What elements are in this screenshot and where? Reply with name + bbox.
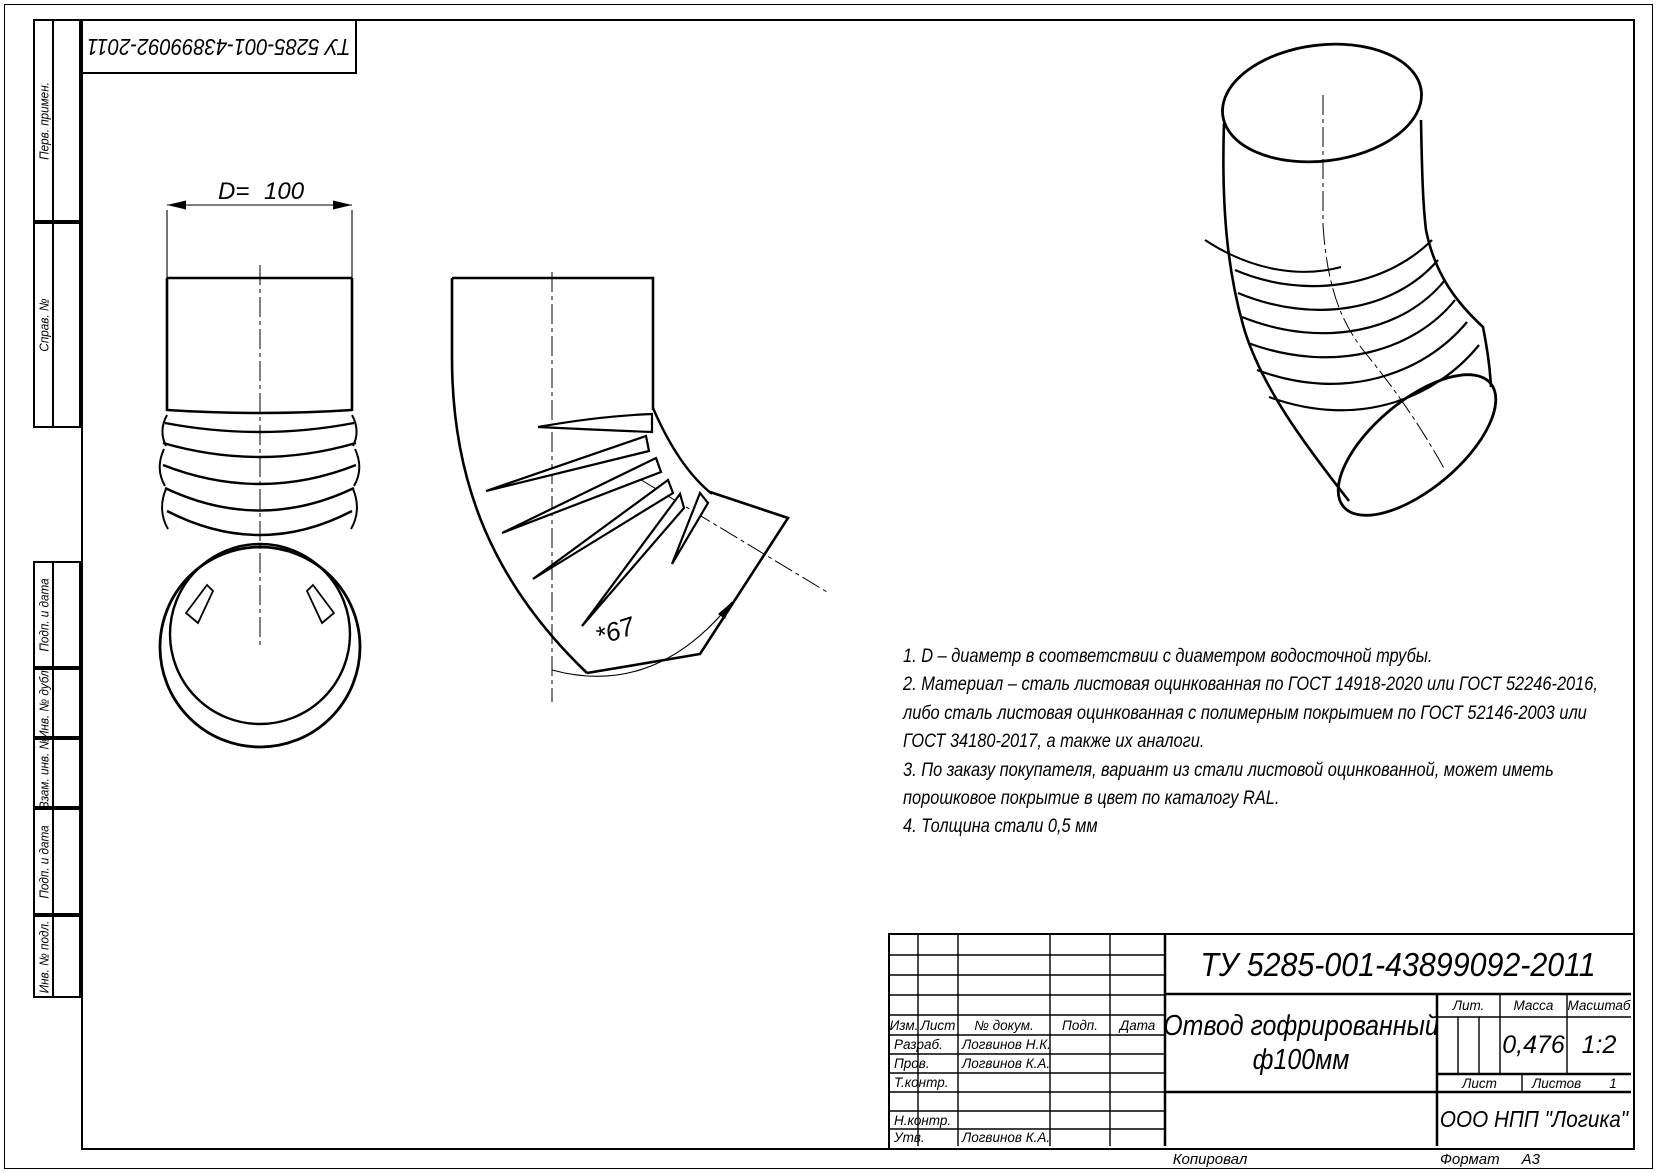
sidebar-cell-inv-dubl: Инв. № дубл.: [33, 668, 81, 738]
corrugation-blade: [502, 458, 661, 533]
inlet-opening-ellipse: [1216, 33, 1429, 173]
inner-bend-edge: [653, 408, 712, 494]
outlet-opening-ellipse: [1315, 350, 1519, 535]
tb-header-izm: Изм.: [890, 1015, 918, 1035]
tb-sheets-label: Листов: [1522, 1074, 1592, 1092]
tb-product-title-line2: ф100мм: [1253, 1043, 1350, 1077]
tu-number-stamp: ТУ 5285-001-43899092-2011: [81, 19, 357, 74]
note-line: 3. По заказу покупателя, вариант из стал…: [903, 756, 1525, 784]
tb-product-title-line1: Отвод гофрированный: [1163, 1009, 1438, 1043]
outlet-notch-right: [307, 585, 334, 623]
tb-row-label-prov: Пров.: [890, 1054, 958, 1073]
outlet-notch-left: [186, 585, 213, 623]
format-value: А3: [1522, 1151, 1540, 1168]
technical-notes: 1. D – диаметр в соответствии с диаметро…: [903, 642, 1643, 841]
side-view-drawing: *67: [400, 230, 830, 710]
tb-header-podp: Подп.: [1050, 1015, 1110, 1035]
tb-scale-value: 1:2: [1567, 1017, 1631, 1074]
dim-arrow-left: [167, 201, 186, 210]
note-line: 1. D – диаметр в соответствии с диаметро…: [903, 642, 1525, 670]
format-label: Формат: [1440, 1151, 1500, 1168]
note-line: ГОСТ 34180-2017, а также их аналоги.: [903, 727, 1525, 755]
sidebar-label: Перв. примен.: [37, 82, 52, 160]
note-line: порошковое покрытие в цвет по каталогу R…: [903, 784, 1525, 812]
dim-arrow-right: [333, 201, 352, 210]
note-line: 2. Материал – сталь листовая оцинкованна…: [903, 670, 1525, 698]
tb-row-name-utv: Логвинов К.А.: [958, 1129, 1050, 1146]
tb-mass-label: Масса: [1500, 994, 1567, 1017]
iso-corrugation-tip: [1205, 240, 1341, 272]
note-line: либо сталь листовая оцинкованная с полим…: [903, 699, 1525, 727]
format-caption: Формат А3: [1440, 1151, 1600, 1168]
sidebar-label: Взам. инв. №: [37, 737, 52, 809]
tb-company: ООО НПП "Логика": [1447, 1092, 1622, 1146]
tb-doc-number: ТУ 5285-001-43899092-2011: [1184, 935, 1613, 994]
corrugation-blade: [538, 414, 652, 432]
tb-row-label-utv: Утв.: [890, 1129, 958, 1146]
copied-label: Копировал: [1120, 1151, 1300, 1168]
iso-corrugation: [1235, 240, 1432, 286]
tb-product-title: Отвод гофрированный ф100мм: [1184, 994, 1418, 1092]
diameter-dim-value: 100: [264, 178, 305, 205]
sidebar-label: Справ. №: [37, 298, 52, 351]
sidebar-cell-podp-data-1: Подп. и дата: [33, 561, 81, 668]
iso-inner-edge: [1421, 120, 1491, 387]
isometric-view-drawing: [1145, 25, 1565, 535]
sidebar-cell-inv-podl: Инв. № подл.: [33, 915, 81, 998]
tb-sheets-value: 1: [1600, 1074, 1626, 1092]
tb-row-label-tkontr: Т.контр.: [890, 1073, 958, 1092]
tb-header-docnum: № докум.: [958, 1015, 1050, 1035]
tb-row-name-prov: Логвинов К.А.: [958, 1054, 1050, 1073]
sidebar-label: Инв. № подл.: [37, 920, 52, 993]
tb-header-list: Лист: [918, 1015, 958, 1035]
tu-number-rotated: ТУ 5285-001-43899092-2011: [87, 33, 351, 60]
tb-row-label-razrab: Разраб.: [890, 1035, 958, 1054]
iso-outer-edge: [1223, 123, 1349, 501]
note-line: 4. Толщина стали 0,5 мм: [903, 812, 1525, 840]
tb-row-name-razrab: Логвинов Н.К.: [958, 1035, 1050, 1054]
drawing-sheet: ТУ 5285-001-43899092-2011 Перв. примен. …: [0, 0, 1657, 1173]
tb-header-data: Дата: [1110, 1015, 1165, 1035]
tb-scale-label: Масштаб: [1567, 994, 1631, 1017]
diameter-dim-label: D=: [218, 178, 249, 205]
tb-mass-value: 0,476: [1500, 1017, 1567, 1074]
angle-dim-label-group: *67: [586, 607, 649, 653]
sidebar-label: Подп. и дата: [37, 825, 52, 898]
sidebar-cell-sprav-no: Справ. №: [33, 222, 81, 428]
tb-lit-label: Лит.: [1437, 994, 1500, 1017]
sidebar-cell-vzam-inv: Взам. инв. №: [33, 738, 81, 808]
sidebar-cell-perv-primen: Перв. примен.: [33, 19, 81, 222]
sidebar-cell-podp-data-2: Подп. и дата: [33, 808, 81, 915]
sidebar-label: Подп. и дата: [37, 578, 52, 651]
tb-row-label-nkontr: Н.контр.: [890, 1111, 958, 1129]
title-block: Изм. Лист № докум. Подп. Дата Разраб. Ло…: [888, 933, 1635, 1150]
front-view-drawing: D= 100: [140, 165, 390, 765]
sidebar-label: Инв. № дубл.: [37, 667, 52, 739]
tb-sheet-label: Лист: [1437, 1074, 1522, 1092]
iso-corrugation: [1242, 280, 1445, 333]
outer-bend-curve: [452, 278, 587, 673]
